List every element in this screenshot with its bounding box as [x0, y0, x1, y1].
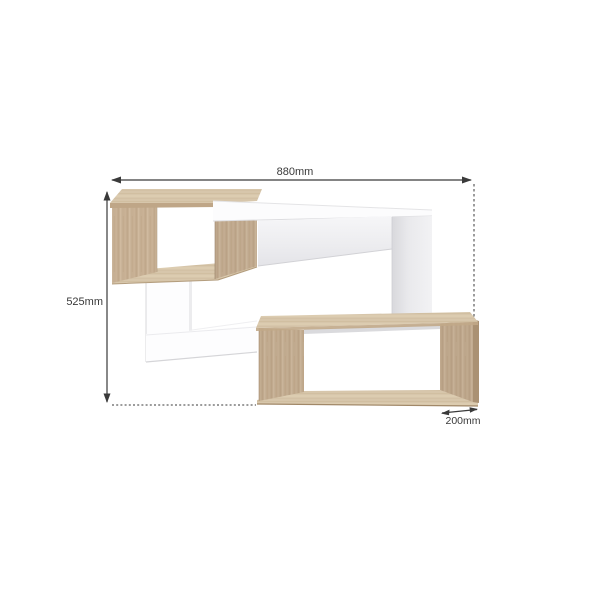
height-arrow-bottom-icon — [104, 394, 111, 404]
height-dimension-label: 525mm — [66, 296, 103, 308]
cube-interior-back — [157, 200, 215, 272]
depth-dimension-label: 200mm — [445, 415, 480, 427]
dimension-width: 880mm — [111, 166, 472, 184]
box-right-panel-tint — [440, 319, 473, 402]
width-dimension-label: 880mm — [277, 166, 314, 178]
cube-top-board — [110, 189, 262, 203]
cube-right-panel-tint — [215, 219, 257, 279]
dimension-depth: 200mm — [441, 407, 481, 427]
desk-apron-panel — [258, 216, 392, 266]
shelf-box-bottom-right — [256, 312, 479, 406]
wall-shelf-drawing: 880mm 525mm 200mm — [0, 0, 600, 600]
box-right-outer-edge — [473, 319, 479, 403]
box-left-panel-tint — [259, 328, 304, 401]
width-arrow-left-icon — [111, 177, 121, 184]
cube-left-panel — [112, 201, 157, 283]
width-arrow-right-icon — [462, 177, 472, 184]
desk-right-side-panel — [392, 216, 432, 323]
dimension-height: 525mm — [66, 191, 110, 403]
shelf-s-bend — [146, 281, 257, 362]
product-dimension-diagram: 880mm 525mm 200mm — [0, 0, 600, 600]
height-arrow-top-icon — [104, 191, 111, 201]
